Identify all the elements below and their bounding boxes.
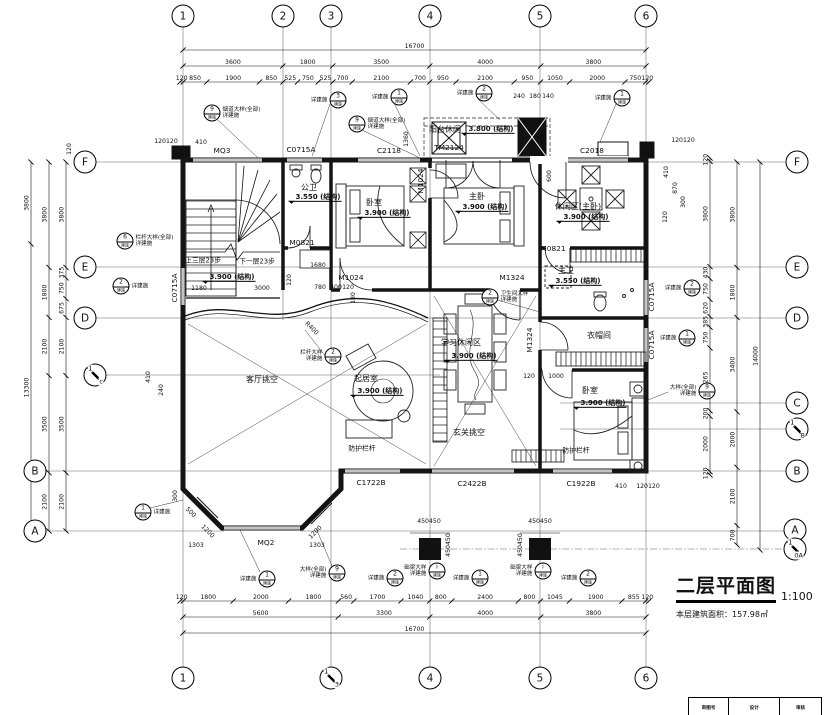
dimension-label: 450450 [446,533,453,557]
annotation-label: 下一层23步 [239,258,275,265]
axis-bubble-numerator: 1 [324,668,329,676]
component-code: M1324 [499,274,524,282]
detail-callout: 2建施栏杆大样详建施 [325,348,342,365]
elevation-label: 3.900 (结构) [203,274,256,282]
axis-bubble-label: 6 [643,10,650,22]
dimension-label: 1303 [309,543,325,550]
axis-bubble-denominator: 0A [794,552,804,560]
axis-bubble: 1c [84,364,107,387]
floor-area-note: 本层建筑面积：157.98㎡ [676,609,822,620]
axis-bubble: 13 [320,667,343,690]
dimension-label: 120 [67,143,74,155]
axis-bubble-label: A [791,524,798,536]
dimension-label: 120120 [636,484,660,491]
detail-callout: 3建施详建施 [330,92,347,109]
callout-number: 2 [326,349,341,358]
callout-number: 9 [205,106,220,115]
axis-bubble: F [74,151,97,174]
component-code: C2422B [457,480,486,488]
axis-bubble: F [786,151,809,174]
room-label: 卧室 [582,387,598,395]
callout-number: 1 [260,572,275,581]
callout-number: 2 [388,571,403,580]
callout-sheet-ref: 建施 [685,289,700,295]
axis-bubble: B [24,460,47,483]
dimension-label: 410 [615,484,627,491]
axis-bubble-numerator: 1 [88,365,93,373]
axis-bubble: 2 [272,5,295,28]
elevation-label: 3.550 (结构) [289,194,342,202]
callout-number: 6 [118,234,133,243]
axis-bubble: D [786,307,809,330]
axis-bubble: 4 [419,667,442,690]
callout-number: 2 [581,571,596,580]
title-block: 二层平面图1:100 本层建筑面积：157.98㎡ [676,571,822,620]
axis-bubble: 3 [320,5,343,28]
callout-number: 1 [680,331,695,340]
callout-text: 详建施 [595,95,612,101]
title-table-col1: 审图号 [689,698,729,715]
elevation-label: 3.900 (结构) [358,210,411,218]
dimension-label: 450450 [417,519,441,526]
elevation-label: 3.900 (结构) [456,204,509,212]
axis-bubble-label: 6 [643,672,650,684]
axis-bubble-label: A [31,525,38,537]
component-code: M0821 [540,245,565,253]
callout-sheet-ref: 建施 [477,94,492,100]
callout-text: 详建施 [240,576,257,582]
callout-text: 详建施 [154,509,171,515]
room-label: 学习休闲区 [441,339,481,347]
axis-bubble: B [786,460,809,483]
callout-number: 9 [700,384,715,393]
axis-bubble: C [786,392,809,415]
axis-bubble-label: F [82,156,88,168]
dimension-label: 600 [547,170,554,182]
dimension-label: 1303 [188,543,204,550]
detail-callout: 2建施详建施 [387,570,404,587]
callout-text: 详建施 [368,124,406,130]
component-code: MQ3 [214,147,231,155]
dimension-label: 1200 [199,524,215,540]
component-code: M0821 [289,239,314,247]
axis-bubble-label: 1 [180,672,187,684]
axis-bubble-denominator: c [99,378,104,386]
component-code: C1722B [356,479,385,487]
detail-callout: 9建施烟道大样(全部)详建施 [204,105,221,122]
callout-number: 2 [477,86,492,95]
detail-callout: 9建施大样(全部)详建施 [699,383,716,400]
detail-callout: i建施础梁大样详建施 [429,563,446,580]
annotation-label: 防护栏杆 [348,445,375,452]
dimension-label: 140 [542,94,554,101]
callout-text: 详建施 [136,241,174,247]
callout-sheet-ref: 建施 [326,357,341,363]
component-code: C0715A [648,282,656,311]
callout-text: 详建施 [300,356,322,362]
detail-callout: 9建施烟道大样(全部)详建施 [349,116,366,133]
callout-number: 9 [330,566,345,575]
page-title: 二层平面图 [676,571,776,603]
callout-text: 详建施 [561,575,578,581]
callout-number: 1 [473,571,488,580]
component-code: M1024 [338,274,363,282]
callout-number: 2 [114,279,129,288]
axis-bubble: 4 [419,5,442,28]
callout-sheet-ref: 建施 [388,579,403,585]
dimension-label: 410 [195,140,207,147]
component-code: C2118 [377,147,401,155]
callout-sheet-ref: 建施 [260,580,275,586]
detail-callout: 2建施详建施 [684,280,701,297]
axis-bubble-label: D [793,312,801,324]
dimension-label: 450450 [528,519,552,526]
callout-sheet-ref: 建施 [114,287,129,293]
dimension-label: 780 [314,285,326,292]
callout-text: 详建施 [670,391,697,397]
callout-sheet-ref: 建施 [430,572,445,578]
axis-bubble-numerator: 1 [790,419,795,427]
callout-text: 详建施 [368,575,385,581]
dimension-label: 1180 [191,286,207,293]
axis-bubble: A [24,520,47,543]
detail-callout: i建施础梁大样详建施 [535,563,552,580]
callout-number: 2 [685,281,700,290]
axis-bubble: D [74,307,97,330]
callout-number: 1 [136,505,151,514]
room-label: 衣帽间 [587,332,611,340]
callout-text: 详建施 [501,297,529,303]
dimension-label: 1680 [310,263,326,270]
annotation-label: 防护栏杆 [562,447,589,454]
dimension-label: 1000 [548,374,564,381]
callout-sheet-ref: 建施 [700,392,715,398]
detail-callout: 2建施卫生间大样详建施 [482,289,499,306]
component-code: C0715A [171,273,179,302]
dimension-label: 120 [523,374,535,381]
axis-bubble-label: 1 [180,10,187,22]
callout-sheet-ref: 建施 [473,579,488,585]
dimension-label: 450450 [518,533,525,557]
dimension-label: 120120 [671,138,695,145]
dimension-label: 410 [664,166,671,178]
title-table-col2: 设计 [729,698,780,715]
detail-callout: 2建施详建施 [476,85,493,102]
callout-number: 9 [350,117,365,126]
dimension-label: 300 [173,490,180,502]
component-code: C0715A [648,330,656,359]
dimension-label: 400 [330,285,342,292]
room-label: 玄关挑空 [453,429,485,437]
room-label: 卧室 [366,199,382,207]
dimension-label: 300 [681,196,688,208]
detail-callout: 2建施详建施 [580,570,597,587]
callout-text: 详建施 [660,335,677,341]
dimension-label: 240 [513,94,525,101]
callout-sheet-ref: 建施 [331,101,346,107]
callout-text: 详建施 [223,113,261,119]
component-code: C0715A [286,146,315,154]
room-label: 主卫 [558,267,574,275]
drawing-scale: 1:100 [781,590,813,603]
callout-sheet-ref: 建施 [680,339,695,345]
callout-text: 详建施 [665,285,682,291]
room-label: 起居室 [354,375,378,383]
detail-callout: 9建施大样(全部)详建施 [329,565,346,582]
elevation-label: 3.550 (结构) [549,278,602,286]
axis-bubble: 6 [635,667,658,690]
axis-bubble-label: 4 [427,672,434,684]
callout-text: 详建施 [510,571,532,577]
callout-sheet-ref: 建施 [615,99,630,105]
room-label: 休闲区(主卧) [555,203,601,211]
room-label: 主卧 [469,193,485,201]
dimension-label: 120 [342,285,354,292]
detail-callout: 2建施详建施 [113,278,130,295]
axis-bubble-label: 5 [537,672,544,684]
callout-number: 1 [615,91,630,100]
dimension-label: 410 [146,371,153,383]
axis-bubble: 5 [529,667,552,690]
callout-sheet-ref: 建施 [205,114,220,120]
axis-bubble-label: 3 [328,10,335,22]
dimension-label: 120120 [154,139,178,146]
axis-bubble: 1B [786,418,809,441]
component-code: C2018 [580,147,604,155]
title-table: 审图号 设计 审核 [688,697,822,715]
callout-number: i [430,564,445,573]
callout-sheet-ref: 建施 [483,298,498,304]
dimension-label: 120 [663,211,670,223]
room-label: 客厅挑空 [246,376,278,384]
callout-text: 详建施 [457,90,474,96]
callout-text: 详建施 [311,97,328,103]
axis-bubble-label: 5 [537,10,544,22]
detail-callout: 1建施详建施 [614,90,631,107]
callout-number: 1 [392,90,407,99]
axis-bubble-denominator: B [800,432,805,440]
detail-callout: 1建施详建施 [259,571,276,588]
detail-callout: 1建施详建施 [391,89,408,106]
axis-bubble-label: B [31,465,38,477]
elevation-label: 3.900 (结构) [574,400,627,408]
dimension-label: R400 [303,321,319,337]
dimension-label: 180 [351,292,358,304]
dimension-label: 240 [159,384,166,396]
detail-callout: 1建施详建施 [472,570,489,587]
callout-sheet-ref: 建施 [581,579,596,585]
floor-plan-sheet: 1670036001800350040003800120850190085052… [0,0,824,715]
axis-bubble-label: 2 [280,10,287,22]
callout-sheet-ref: 建施 [350,125,365,131]
detail-callout: 1建施详建施 [135,504,152,521]
component-code: MQ2 [258,539,275,547]
axis-bubble-label: E [794,261,801,273]
dimension-label: 120 [287,274,294,286]
callout-text: 详建施 [300,573,327,579]
axis-bubble: E [74,256,97,279]
axis-bubble-label: C [793,397,800,409]
detail-callout: 1建施详建施 [679,330,696,347]
component-code: TM2124 [434,144,464,152]
axis-bubble: 1 [172,667,195,690]
callout-sheet-ref: 建施 [118,242,133,248]
axis-bubble-denominator: 3 [334,681,339,689]
dimension-label: 3000 [254,286,270,293]
callout-sheet-ref: 建施 [392,98,407,104]
axis-bubble: 5 [529,5,552,28]
component-code: C1922B [566,480,595,488]
dimension-label: 180 [529,94,541,101]
axis-bubble: 1 [172,5,195,28]
dimension-label: 870 [673,182,680,194]
callout-sheet-ref: 建施 [330,574,345,580]
dimension-label: 500 [184,507,197,520]
axis-bubble-label: 4 [427,10,434,22]
component-code: M1324 [526,327,534,352]
axis-bubble-label: E [82,261,89,273]
axis-bubble-label: B [793,465,800,477]
callout-text: 详建施 [453,575,470,581]
dimension-label: 1360 [404,131,411,147]
axis-bubble: E [786,256,809,279]
elevation-label: 3.900 (结构) [445,353,498,361]
callout-number: 3 [331,93,346,102]
callout-sheet-ref: 建施 [536,572,551,578]
axis-bubble: 6 [635,5,658,28]
axis-bubble-label: F [794,156,800,168]
room-label: 阳台休闲 [429,126,461,134]
axis-bubble-numerator: 1 [788,539,793,547]
callout-text: 详建施 [404,571,426,577]
axis-bubble: 10A [784,538,807,561]
detail-callout: 6建施栏杆大样(全部)详建施 [117,233,134,250]
callout-number: 2 [483,290,498,299]
callout-number: i [536,564,551,573]
room-label: 公卫 [301,184,317,192]
dimension-label: 1200 [308,525,324,541]
annotation-label: 上三层23步 [185,257,221,264]
component-code: M1024 [417,168,425,193]
callout-sheet-ref: 建施 [136,513,151,519]
callout-text: 详建施 [132,283,149,289]
elevation-label: 3.800 (结构) [462,126,515,134]
axis-bubble-label: D [81,312,89,324]
elevation-label: 3.900 (结构) [351,388,404,396]
callout-text: 详建施 [372,94,389,100]
title-table-col3: 审核 [780,698,822,715]
elevation-label: 3.900 (结构) [557,214,610,222]
dimension-label: 1600 [542,131,549,147]
